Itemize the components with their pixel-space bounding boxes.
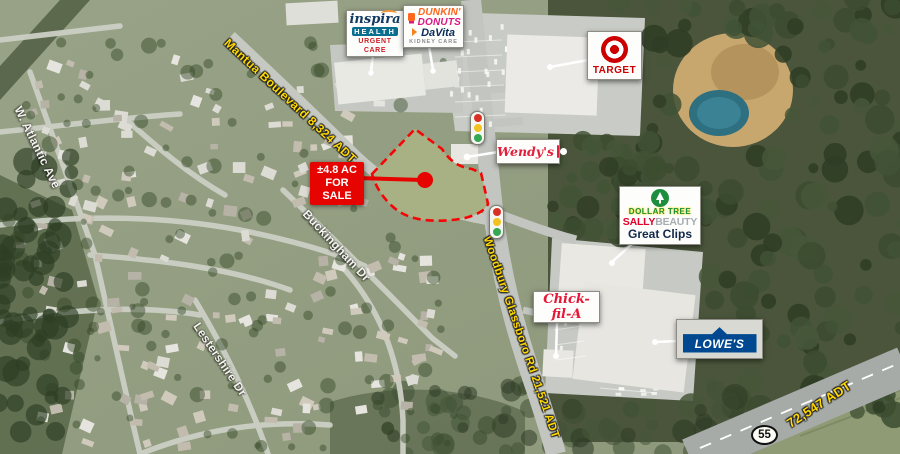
davita-kidney-care-text: KIDNEY CARE <box>406 39 461 45</box>
great-clips-wordmark: Great Clips <box>622 228 698 241</box>
chick-fil-a-logo-box: Chick-fil-A <box>533 291 600 323</box>
for-sale-text: FOR SALE <box>312 177 362 203</box>
target-logo-box: TARGET <box>587 31 642 80</box>
traffic-signal-icon-south <box>489 205 504 239</box>
inspira-swoosh-icon <box>381 10 397 17</box>
dollar-tree-sally-greatclips-box: DOLLAR TREE SALLYBEAUTY Great Clips <box>619 186 701 245</box>
signal-green-light <box>474 134 482 142</box>
target-bullseye-icon <box>601 36 628 63</box>
signal-red-light <box>474 114 482 122</box>
inspira-logo-box: inspira HEALTH URGENT CARE <box>346 10 404 57</box>
dollar-tree-icon <box>651 189 669 207</box>
lowes-logo-box: LOWE'S <box>676 319 763 359</box>
wendys-wordmark: Wendy's <box>497 144 554 159</box>
target-wordmark: TARGET <box>590 65 639 76</box>
dunkin-coffee-cup-icon <box>406 11 416 25</box>
aerial-sale-map: Mantua Boulevard 8,324 ADT Woodbury Glas… <box>0 0 900 454</box>
davita-name-text: DaVita <box>421 27 455 39</box>
lowes-wordmark: LOWE'S <box>695 336 745 353</box>
wendys-logo-box: Wendy's <box>496 139 560 164</box>
inspira-health-bar: HEALTH <box>352 27 398 36</box>
dollar-tree-wordmark: DOLLAR TREE <box>622 207 698 216</box>
traffic-signal-icon-north <box>470 111 485 145</box>
signal-green-light <box>493 228 501 236</box>
davita-wordmark: DaVita <box>406 28 461 39</box>
route-55-number: 55 <box>758 429 771 441</box>
for-sale-acreage: ±4.8 AC <box>312 164 362 177</box>
inspira-urgent-care-text: URGENT CARE <box>349 37 401 55</box>
lowes-house-badge-icon: LOWE'S <box>683 326 757 353</box>
dunkin-row: DUNKIN' DONUTS <box>406 8 461 28</box>
chick-fil-a-wordmark: Chick-fil-A <box>534 292 599 322</box>
signal-yellow-light <box>474 124 482 132</box>
signal-red-light <box>493 208 501 216</box>
inspira-wordmark: inspira <box>349 13 401 26</box>
for-sale-callout: ±4.8 AC FOR SALE <box>310 162 364 205</box>
pond-shallow <box>697 97 741 129</box>
dunkin-davita-logo-box: DUNKIN' DONUTS DaVita KIDNEY CARE <box>403 5 464 48</box>
signal-yellow-light <box>493 218 501 226</box>
route-55-shield: 55 <box>751 425 778 445</box>
wendys-girl-icon <box>557 145 559 158</box>
satellite-imagery-layer <box>0 0 900 454</box>
davita-accent-icon <box>412 28 417 36</box>
